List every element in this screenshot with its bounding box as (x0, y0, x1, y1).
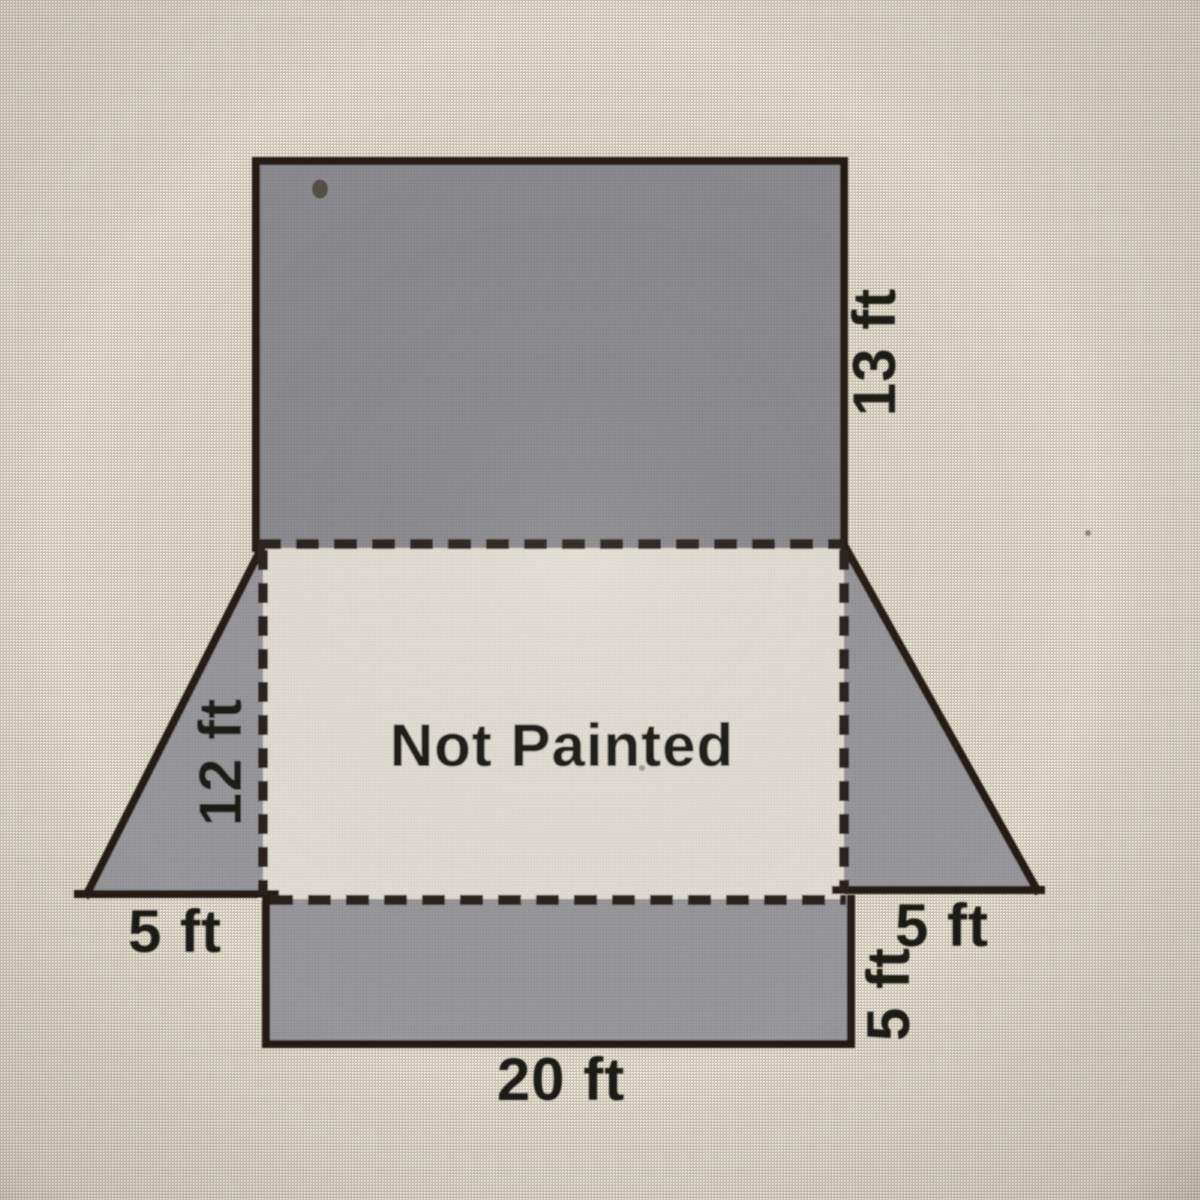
geometry-net-diagram: Not Painted 13 ft 12 ft 5 ft 5 ft 5 ft 2… (0, 0, 1200, 1200)
diagram-canvas: Not Painted 13 ft 12 ft 5 ft 5 ft 5 ft 2… (0, 0, 1200, 1200)
vignette-overlay (0, 0, 1200, 1200)
